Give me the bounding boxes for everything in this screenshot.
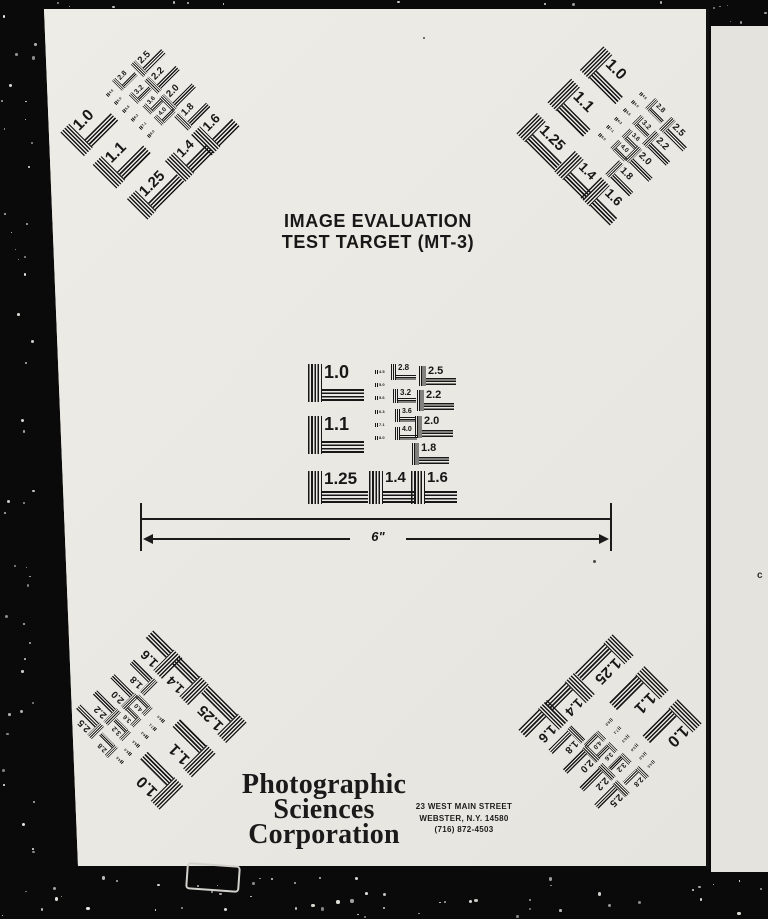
film-dust-speck xyxy=(383,893,386,896)
resolution-patch: 1.4 xyxy=(369,471,415,504)
micro-value: 5.0 xyxy=(379,383,385,387)
title-line-2: TEST TARGET (MT-3) xyxy=(258,232,498,253)
film-dust-speck xyxy=(69,6,70,7)
film-dust-speck xyxy=(4,213,6,215)
film-dust-speck xyxy=(740,21,742,23)
patch-value: 1.6 xyxy=(425,471,457,485)
micro-value: 7.1 xyxy=(141,122,147,128)
film-dust-speck xyxy=(713,884,714,885)
film-dust-speck xyxy=(32,56,35,59)
address-line-3: (716) 872-4503 xyxy=(408,824,520,836)
film-dust-speck xyxy=(55,897,58,900)
horizontal-bars xyxy=(419,457,449,465)
micro-value: 8.0 xyxy=(604,720,610,726)
film-dust-speck xyxy=(41,908,43,910)
film-dust-speck xyxy=(29,642,31,644)
micro-value: 4.5 xyxy=(379,370,385,374)
film-dust-speck xyxy=(14,565,16,567)
film-dust-speck xyxy=(660,1,663,4)
film-dust-speck xyxy=(336,900,340,904)
page-speck xyxy=(423,37,425,39)
micro-value: 7.1 xyxy=(608,127,614,133)
scale-bar-right-tick xyxy=(610,503,612,551)
film-dust-speck xyxy=(760,888,763,891)
film-dust-speck xyxy=(311,904,315,908)
film-dust-speck xyxy=(23,623,25,625)
film-dust-speck xyxy=(295,907,298,910)
film-dust-speck xyxy=(5,615,8,618)
horizontal-bars xyxy=(424,403,454,411)
resolution-patch: 2.2 xyxy=(417,390,454,411)
film-dust-speck xyxy=(34,43,37,46)
micro-value: 4.5 xyxy=(642,94,648,100)
micro-value: 4.5 xyxy=(108,88,114,94)
film-dust-speck xyxy=(31,340,34,343)
film-dust-speck xyxy=(15,53,18,56)
micro-value: 8.0 xyxy=(150,130,156,136)
film-dust-speck xyxy=(173,1,175,3)
film-dust-speck xyxy=(638,901,641,904)
film-dust-speck xyxy=(250,896,251,897)
adjacent-page-sliver xyxy=(711,26,768,872)
horizontal-bars xyxy=(426,378,456,386)
vertical-bars xyxy=(412,443,419,465)
film-dust-speck xyxy=(21,670,24,673)
company-address: 23 WEST MAIN STREET WEBSTER, N.Y. 14580 … xyxy=(408,801,520,836)
patch-value: 2.2 xyxy=(424,390,454,400)
micro-value: 6.3 xyxy=(379,410,385,414)
micro-value: 6.3 xyxy=(617,119,623,125)
film-dust-speck xyxy=(23,430,26,433)
patch-value: 3.6 xyxy=(400,409,416,416)
film-dust-speck xyxy=(1,100,3,102)
film-dust-speck xyxy=(224,908,227,911)
film-dust-speck xyxy=(223,3,224,4)
film-dust-speck xyxy=(737,912,740,915)
film-dust-speck xyxy=(572,3,575,6)
resolution-patch: 1.6 xyxy=(411,471,457,504)
film-dust-speck xyxy=(259,878,261,880)
horizontal-bars xyxy=(400,417,416,422)
micro-value: 5.6 xyxy=(625,111,631,117)
film-dust-speck xyxy=(11,232,12,233)
resolution-patch: 1.1 xyxy=(308,416,364,454)
film-dust-speck xyxy=(474,899,477,902)
micro-value: 5.0 xyxy=(633,102,639,108)
micro-value: 7.1 xyxy=(613,728,619,734)
film-dust-speck xyxy=(181,907,183,909)
film-dust-speck xyxy=(7,500,10,503)
resolution-patch: 1.0 xyxy=(308,364,364,402)
film-dust-speck xyxy=(26,567,27,568)
film-dust-speck xyxy=(3,15,6,18)
film-dust-speck xyxy=(700,898,702,900)
film-dust-speck xyxy=(26,223,28,225)
film-dust-speck xyxy=(529,899,531,901)
film-dust-speck xyxy=(21,419,24,422)
film-dust-speck xyxy=(698,886,700,888)
film-dust-speck xyxy=(17,313,20,316)
micro-value: 5.0 xyxy=(116,97,122,103)
patch-value: 2.0 xyxy=(422,416,453,426)
film-dust-speck xyxy=(24,273,27,276)
title-line-1: IMAGE EVALUATION xyxy=(258,211,498,232)
patch-value: 1.25 xyxy=(322,471,368,487)
film-dust-speck xyxy=(33,801,35,803)
page-speck xyxy=(593,560,596,563)
patch-value: 1.1 xyxy=(322,416,364,433)
vertical-bars xyxy=(308,364,322,402)
film-dust-speck xyxy=(61,896,62,897)
film-dust-speck xyxy=(187,2,189,4)
film-dust-speck xyxy=(25,101,27,103)
film-dust-speck xyxy=(29,576,30,577)
film-dust-speck xyxy=(32,702,34,704)
target-title: IMAGE EVALUATION TEST TARGET (MT-3) xyxy=(258,211,498,253)
film-dust-speck xyxy=(357,914,358,915)
resolution-patch: 4.0 xyxy=(395,427,417,440)
film-dust-speck xyxy=(550,885,552,887)
film-dust-speck xyxy=(719,6,720,7)
resolution-patch: 2.5 xyxy=(419,366,456,386)
film-dust-speck xyxy=(112,6,115,9)
film-dust-speck xyxy=(692,889,694,891)
vertical-bars xyxy=(308,471,322,504)
horizontal-bars xyxy=(422,430,453,438)
film-dust-speck xyxy=(727,5,728,6)
film-dust-speck xyxy=(559,909,562,912)
film-dust-speck xyxy=(32,490,34,492)
horizontal-bars xyxy=(322,441,364,454)
film-dust-speck xyxy=(24,658,26,660)
micro-value: 8.0 xyxy=(379,436,385,440)
logo-line-3: Corporation xyxy=(208,822,440,847)
address-line-1: 23 WEST MAIN STREET xyxy=(408,801,520,813)
resolution-patch: 2.0 xyxy=(415,416,453,438)
film-dust-speck xyxy=(2,915,3,916)
micro-value: 6.3 xyxy=(133,113,139,119)
film-dust-speck xyxy=(219,893,221,895)
film-dust-speck xyxy=(15,249,16,250)
margin-note: c xyxy=(757,570,763,581)
film-dust-speck xyxy=(211,891,213,893)
page-edge-line xyxy=(706,9,709,869)
film-dust-speck xyxy=(321,907,325,911)
film-dust-speck xyxy=(53,887,56,890)
film-dust-speck xyxy=(294,882,296,884)
micro-value: 7.1 xyxy=(379,423,385,427)
film-dust-speck xyxy=(28,166,30,168)
horizontal-bars xyxy=(322,491,368,504)
vertical-bars xyxy=(308,416,322,454)
horizontal-bars xyxy=(425,491,457,504)
micro-value: 4.5 xyxy=(647,763,653,769)
scale-arrow-left-segment xyxy=(150,538,350,540)
film-dust-speck xyxy=(102,876,105,879)
film-dust-speck xyxy=(444,901,446,903)
film-dust-speck xyxy=(544,3,545,4)
resolution-patch: 3.2 xyxy=(393,389,416,403)
film-dust-speck xyxy=(364,916,367,919)
micro-value: 5.6 xyxy=(630,745,636,751)
horizontal-bars xyxy=(322,389,364,402)
horizontal-bars xyxy=(400,435,417,440)
film-dust-speck xyxy=(764,12,767,15)
vertical-bars xyxy=(417,390,424,411)
micro-value: 5.0 xyxy=(638,754,644,760)
scale-bar-left-tick xyxy=(140,503,142,551)
film-dust-speck xyxy=(598,892,601,895)
film-dust-speck xyxy=(713,7,715,9)
vertical-bars xyxy=(419,366,426,386)
film-dust-speck xyxy=(397,1,400,4)
left-arrowhead-icon xyxy=(143,534,153,544)
scale-bar-rule xyxy=(141,518,611,520)
patch-value: 4.0 xyxy=(400,427,417,434)
film-dust-speck xyxy=(252,882,255,885)
film-dust-speck xyxy=(25,362,27,364)
film-dust-speck xyxy=(23,502,25,504)
patch-value: 1.8 xyxy=(419,443,449,453)
film-dust-speck xyxy=(350,899,353,902)
film-dust-speck xyxy=(25,891,27,893)
horizontal-bars xyxy=(398,398,416,403)
film-dust-speck xyxy=(549,877,552,880)
patch-value: 1.0 xyxy=(322,364,364,381)
test-pattern-cluster-center: 1.01.11.251.41.62.52.22.01.82.83.23.64.0… xyxy=(307,364,457,504)
micro-value: 6.3 xyxy=(621,737,627,743)
film-dust-speck xyxy=(730,21,732,23)
film-dust-speck xyxy=(319,877,321,879)
film-dust-speck xyxy=(86,907,90,911)
film-dust-speck xyxy=(469,900,472,903)
film-dust-speck xyxy=(2,769,5,772)
horizontal-bars xyxy=(396,375,416,380)
vertical-bars xyxy=(369,471,383,504)
film-dust-speck xyxy=(155,909,156,910)
film-dust-speck xyxy=(439,902,440,903)
film-dust-speck xyxy=(516,915,519,918)
right-arrowhead-icon xyxy=(599,534,609,544)
resolution-patch: 2.8 xyxy=(391,364,416,380)
film-dust-speck xyxy=(3,784,5,786)
film-dust-speck xyxy=(418,913,419,914)
resolution-patch: 1.25 xyxy=(308,471,368,504)
company-logo: Photographic Sciences Corporation xyxy=(208,772,440,847)
film-dust-speck xyxy=(8,713,11,716)
micro-resolution-strip: 4.55.05.66.37.18.0 xyxy=(375,366,390,444)
film-dust-speck xyxy=(24,256,26,258)
micro-value: 5.6 xyxy=(125,105,131,111)
scale-arrow-right-segment xyxy=(406,538,606,540)
address-line-2: WEBSTER, N.Y. 14580 xyxy=(408,813,520,825)
film-dust-speck xyxy=(4,128,6,130)
micro-value: 5.6 xyxy=(379,396,385,400)
film-dust-speck xyxy=(31,142,33,144)
film-dust-speck xyxy=(18,259,19,260)
film-dust-speck xyxy=(27,584,30,587)
patch-value: 2.5 xyxy=(426,366,456,376)
film-dust-speck xyxy=(365,892,368,895)
film-dust-speck xyxy=(355,877,358,880)
film-dust-speck xyxy=(529,908,531,910)
film-dust-speck xyxy=(383,907,385,909)
scale-length-label: 6" xyxy=(352,529,404,544)
film-dust-speck xyxy=(9,84,11,86)
micro-value: 8.0 xyxy=(600,136,606,142)
film-scan-background: IMAGE EVALUATION TEST TARGET (MT-3) 6" P… xyxy=(0,0,768,919)
film-dust-speck xyxy=(271,878,273,880)
film-dust-speck xyxy=(6,733,9,736)
film-dust-speck xyxy=(32,848,33,849)
film-dust-speck xyxy=(57,2,59,4)
film-dust-speck xyxy=(197,885,199,887)
film-dust-speck xyxy=(20,710,23,713)
patch-value: 2.8 xyxy=(396,364,416,372)
film-dust-speck xyxy=(22,823,25,826)
resolution-patch: 1.8 xyxy=(412,443,449,465)
film-dust-speck xyxy=(4,512,6,514)
film-dust-speck xyxy=(608,904,611,907)
film-edge-mark xyxy=(185,862,241,893)
film-dust-speck xyxy=(157,884,159,886)
film-dust-speck xyxy=(25,119,26,120)
film-dust-speck xyxy=(116,880,118,882)
vertical-bars xyxy=(411,471,425,504)
patch-value: 3.2 xyxy=(398,389,416,397)
resolution-patch: 3.6 xyxy=(395,409,416,422)
film-dust-speck xyxy=(739,880,741,882)
film-dust-speck xyxy=(32,851,35,854)
